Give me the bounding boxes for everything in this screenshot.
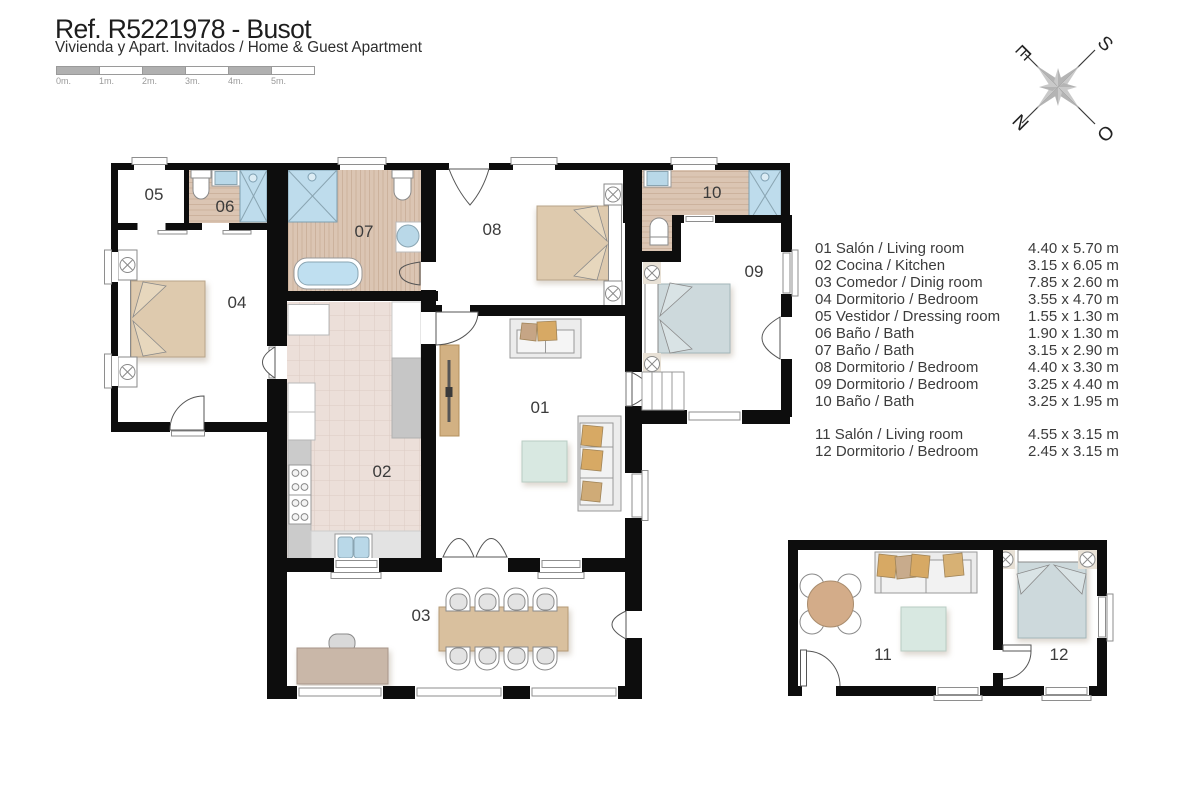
svg-text:05: 05 — [145, 185, 164, 204]
svg-text:10 Baño / Bath: 10 Baño / Bath — [815, 393, 914, 410]
svg-text:12 Dormitorio / Bedroom: 12 Dormitorio / Bedroom — [815, 443, 978, 460]
svg-text:0m.: 0m. — [56, 76, 71, 86]
svg-text:3.15 x 6.05 m: 3.15 x 6.05 m — [1028, 257, 1119, 274]
svg-text:03: 03 — [412, 606, 431, 625]
svg-text:02 Cocina / Kitchen: 02 Cocina / Kitchen — [815, 257, 945, 274]
svg-text:1m.: 1m. — [99, 76, 114, 86]
svg-text:12: 12 — [1050, 645, 1069, 664]
svg-text:11: 11 — [874, 645, 892, 664]
svg-text:3m.: 3m. — [185, 76, 200, 86]
svg-text:3.25 x 4.40 m: 3.25 x 4.40 m — [1028, 376, 1119, 393]
svg-text:Vivienda y Apart. Invitados /: Vivienda y Apart. Invitados / Home & Gue… — [55, 39, 423, 56]
svg-text:4.40 x 5.70 m: 4.40 x 5.70 m — [1028, 240, 1119, 257]
svg-text:3.15 x 2.90 m: 3.15 x 2.90 m — [1028, 342, 1119, 359]
svg-text:11 Salón / Living room: 11 Salón / Living room — [815, 426, 963, 443]
svg-text:04: 04 — [228, 293, 247, 312]
svg-text:03 Comedor / Dinig room: 03 Comedor / Dinig room — [815, 274, 983, 291]
svg-text:08: 08 — [483, 220, 502, 239]
svg-text:3.25 x 1.95 m: 3.25 x 1.95 m — [1028, 393, 1119, 410]
svg-text:4m.: 4m. — [228, 76, 243, 86]
svg-text:06: 06 — [216, 197, 235, 216]
svg-text:01 Salón / Living room: 01 Salón / Living room — [815, 240, 964, 257]
svg-text:5m.: 5m. — [271, 76, 286, 86]
svg-text:02: 02 — [373, 462, 392, 481]
svg-text:08 Dormitorio / Bedroom: 08 Dormitorio / Bedroom — [815, 359, 978, 376]
svg-text:10: 10 — [703, 183, 722, 202]
svg-text:07: 07 — [355, 222, 374, 241]
svg-text:09: 09 — [745, 262, 764, 281]
svg-text:07 Baño / Bath: 07 Baño / Bath — [815, 342, 914, 359]
svg-text:7.85 x 2.60 m: 7.85 x 2.60 m — [1028, 274, 1119, 291]
svg-text:3.55 x 4.70 m: 3.55 x 4.70 m — [1028, 291, 1119, 308]
svg-text:2.45 x 3.15 m: 2.45 x 3.15 m — [1028, 443, 1119, 460]
svg-text:06 Baño / Bath: 06 Baño / Bath — [815, 325, 914, 342]
svg-text:4.40 x 3.30 m: 4.40 x 3.30 m — [1028, 359, 1119, 376]
svg-text:4.55 x 3.15 m: 4.55 x 3.15 m — [1028, 426, 1119, 443]
svg-text:1.55 x 1.30 m: 1.55 x 1.30 m — [1028, 308, 1119, 325]
svg-text:04 Dormitorio / Bedroom: 04 Dormitorio / Bedroom — [815, 291, 978, 308]
svg-text:2m.: 2m. — [142, 76, 157, 86]
svg-text:1.90 x 1.30 m: 1.90 x 1.30 m — [1028, 325, 1119, 342]
svg-text:01: 01 — [531, 398, 550, 417]
svg-text:05 Vestidor / Dressing room: 05 Vestidor / Dressing room — [815, 308, 1000, 325]
svg-text:09 Dormitorio / Bedroom: 09 Dormitorio / Bedroom — [815, 376, 978, 393]
